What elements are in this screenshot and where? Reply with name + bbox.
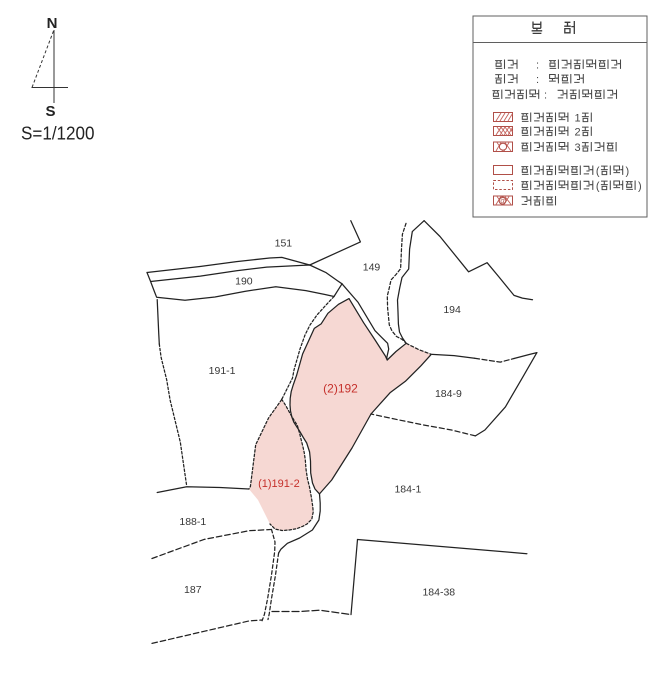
svg-text:2: 2: [575, 127, 581, 139]
svg-text:(1)191-2: (1)191-2: [258, 478, 300, 490]
svg-text:187: 187: [184, 584, 202, 596]
svg-text:(2)192: (2)192: [323, 382, 358, 396]
svg-text:191-1: 191-1: [209, 365, 236, 377]
svg-text:3: 3: [575, 142, 581, 154]
svg-text:N: N: [47, 15, 58, 32]
svg-text:188-1: 188-1: [179, 516, 206, 528]
svg-text:(: (: [596, 166, 600, 178]
svg-text:1: 1: [575, 113, 581, 125]
svg-text::: :: [536, 74, 539, 86]
svg-text:194: 194: [443, 304, 461, 316]
svg-text:151: 151: [275, 238, 293, 250]
svg-text:184-38: 184-38: [422, 587, 455, 599]
svg-text:): ): [626, 166, 630, 178]
svg-text:184-9: 184-9: [435, 388, 462, 400]
svg-text::: :: [536, 60, 539, 72]
svg-text:184-1: 184-1: [394, 484, 421, 496]
svg-text:(: (: [596, 181, 600, 193]
svg-text:190: 190: [235, 276, 253, 288]
svg-text:S: S: [45, 103, 55, 120]
svg-text:): ): [638, 181, 642, 193]
svg-text::: :: [544, 90, 547, 102]
svg-text:S=1/1200: S=1/1200: [21, 122, 95, 143]
svg-text:149: 149: [363, 261, 381, 273]
svg-text:@: @: [498, 196, 506, 205]
